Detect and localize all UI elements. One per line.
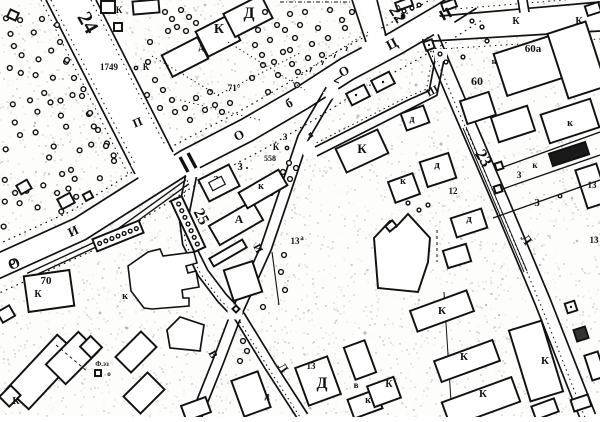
svg-text:а: а xyxy=(300,234,304,242)
svg-text:Ф.эз: Ф.эз xyxy=(95,360,109,368)
svg-text:к: к xyxy=(258,181,264,192)
svg-text:71°: 71° xyxy=(228,83,241,93)
svg-text:13: 13 xyxy=(291,236,301,246)
svg-text:З: З xyxy=(283,132,288,142)
svg-text:К: К xyxy=(273,142,280,152)
svg-text:13: 13 xyxy=(590,235,600,245)
svg-text:д: д xyxy=(198,42,203,53)
svg-text:К: К xyxy=(479,388,487,400)
svg-text:в: в xyxy=(354,380,359,390)
svg-text:Д: Д xyxy=(316,375,327,392)
svg-text:н: н xyxy=(492,57,497,66)
svg-text:Д: Д xyxy=(243,5,254,22)
svg-text:К: К xyxy=(385,379,393,390)
svg-text:К: К xyxy=(143,62,150,72)
svg-text:К: К xyxy=(116,5,123,15)
svg-text:К: К xyxy=(575,16,583,27)
svg-text:З: З xyxy=(517,170,522,180)
svg-text:К: К xyxy=(541,355,549,367)
svg-text:д: д xyxy=(434,159,440,171)
svg-text:д: д xyxy=(264,391,269,402)
svg-text:д: д xyxy=(409,114,414,125)
svg-text:К: К xyxy=(214,22,225,37)
svg-text:12: 12 xyxy=(449,186,459,196)
svg-text:К: К xyxy=(357,141,367,156)
svg-text:13: 13 xyxy=(307,361,317,371)
svg-text:60а: 60а xyxy=(525,43,542,55)
svg-text:к: к xyxy=(567,118,573,129)
svg-text:К: К xyxy=(512,16,520,27)
svg-text:К: К xyxy=(34,289,42,300)
svg-text:З: З xyxy=(237,162,242,173)
svg-text:к: к xyxy=(532,160,538,170)
svg-text:60: 60 xyxy=(471,74,483,88)
svg-text:к: к xyxy=(122,291,128,302)
svg-text:д: д xyxy=(466,213,472,225)
svg-text:К: К xyxy=(12,396,20,407)
svg-text:558: 558 xyxy=(264,154,276,163)
svg-text:о: о xyxy=(107,370,111,378)
svg-text:К: К xyxy=(438,305,446,317)
svg-text:К: К xyxy=(460,351,468,363)
svg-text:А: А xyxy=(235,212,244,226)
svg-text:70: 70 xyxy=(41,275,53,287)
svg-text:1749: 1749 xyxy=(100,62,119,72)
svg-text:к: к xyxy=(400,176,406,187)
